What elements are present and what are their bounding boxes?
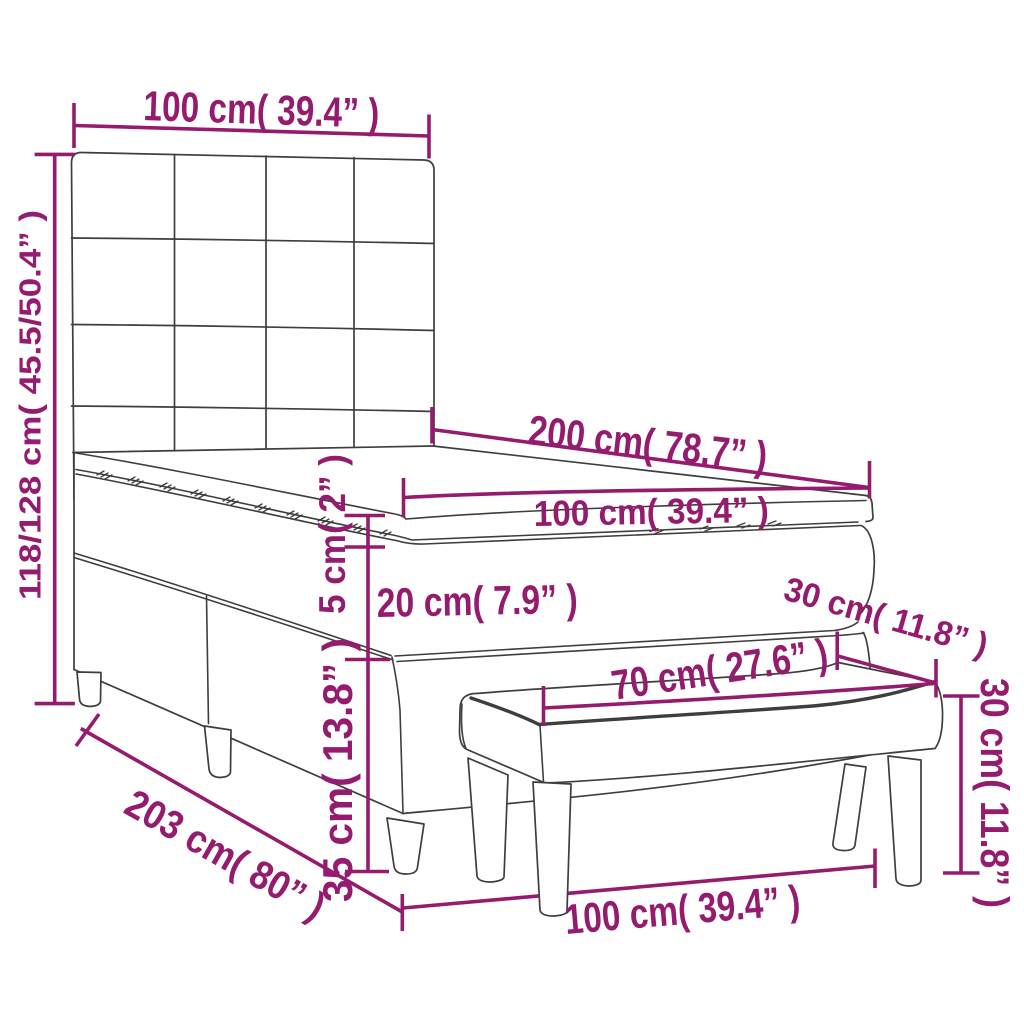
svg-text:100 cm( 39.4” ): 100 cm( 39.4” ) [143, 82, 380, 137]
svg-text:20 cm( 7.9” ): 20 cm( 7.9” ) [376, 576, 578, 626]
svg-text:35 cm( 13.8” ): 35 cm( 13.8” ) [314, 638, 361, 902]
svg-text:118/128 cm( 45.5/50.4” ): 118/128 cm( 45.5/50.4” ) [13, 210, 48, 600]
svg-text:100 cm( 39.4” ): 100 cm( 39.4” ) [533, 489, 769, 534]
svg-text:5 cm( 2” ): 5 cm( 2” ) [312, 454, 353, 614]
svg-text:30 cm( 11.8” ): 30 cm( 11.8” ) [972, 678, 1016, 908]
